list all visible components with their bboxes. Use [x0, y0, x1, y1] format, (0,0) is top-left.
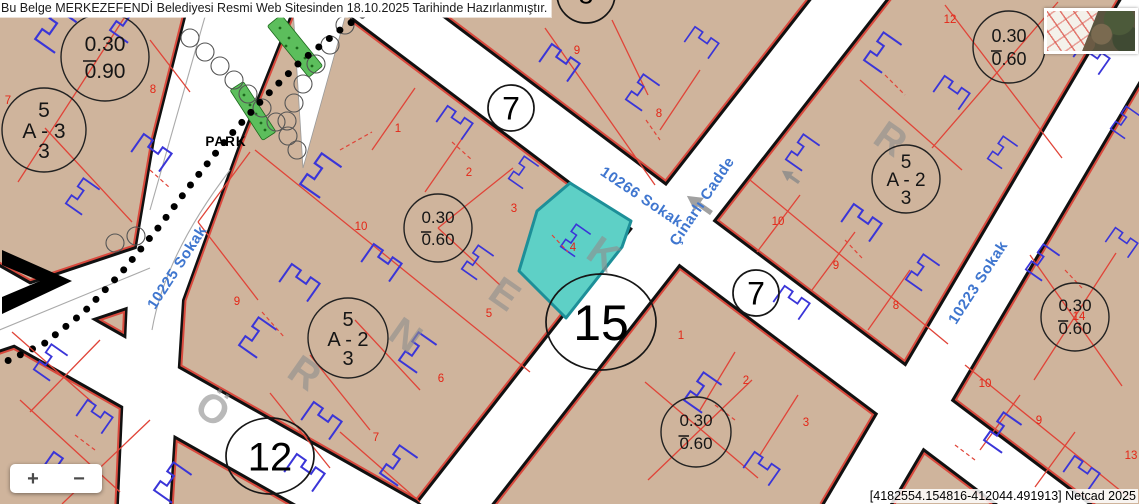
zoning-value: 0.90: [85, 60, 126, 83]
basemap-preview-toggle[interactable]: [1044, 8, 1138, 54]
zoning-value: 0.60: [991, 49, 1026, 69]
parcel-number: 3: [803, 417, 809, 429]
parcel-number: 12: [944, 14, 957, 26]
zoning-value: 5: [342, 309, 353, 331]
zoom-in-button[interactable]: +: [17, 469, 49, 489]
zoning-value: 0.30: [679, 411, 712, 430]
parcel-number: 9: [234, 296, 240, 308]
zoom-out-button[interactable]: −: [63, 469, 95, 489]
parcel-number: 13: [1125, 450, 1138, 462]
parcel-number: 7: [5, 95, 11, 107]
parcel-number: 1: [678, 330, 684, 342]
zoning-value: 3: [342, 348, 353, 370]
parcel-number: 9: [833, 260, 839, 272]
parcel-number: 8: [150, 84, 156, 96]
parcel-number: 10: [979, 378, 992, 390]
parcel-number: 8: [656, 108, 662, 120]
parcel-number: 4: [570, 242, 577, 254]
zoning-value: 0.60: [679, 434, 712, 453]
document-banner: Bu Belge MERKEZEFENDİ Belediyesi Resmi W…: [0, 0, 551, 17]
parcel-number: 10: [772, 216, 785, 228]
parcel-number: 9: [1036, 415, 1042, 427]
parcel-number: 9: [574, 45, 580, 57]
zoom-control: + −: [10, 464, 102, 493]
area-labels: PARK: [205, 134, 246, 149]
parcel-number: 10: [355, 221, 368, 233]
zoning-value: 3: [38, 140, 50, 163]
road-number: 7: [747, 276, 765, 312]
road-number: 3: [579, 0, 593, 9]
parcel-number: 2: [743, 375, 749, 387]
zoning-value: 5: [38, 99, 50, 122]
road-number: 12: [248, 435, 293, 479]
map-canvas[interactable]: ÖRNEKR 0.300.905A - 330.300.605A - 235A …: [0, 0, 1139, 504]
road-number: 15: [573, 295, 629, 351]
parcel-number: 2: [466, 167, 472, 179]
zoning-value: 0.30: [85, 33, 126, 56]
map-viewer: ÖRNEKR 0.300.905A - 330.300.605A - 235A …: [0, 0, 1139, 504]
parcel-number: 5: [486, 308, 492, 320]
parcel-number: 7: [373, 432, 379, 444]
parcel-number: 3: [511, 203, 517, 215]
park-label: PARK: [205, 134, 246, 149]
zoning-value: 0.30: [421, 208, 454, 227]
parcel-number: 8: [893, 300, 899, 312]
zoning-value: 0.30: [991, 26, 1026, 46]
zoning-value: 0.60: [421, 230, 454, 249]
parcel-number: 6: [438, 373, 444, 385]
parcel-number: 1: [395, 123, 401, 135]
road-number: 7: [502, 91, 520, 127]
parcel-number: 14: [1073, 311, 1086, 323]
coordinate-statusbar: [4182554.154816-412044.491913] Netcad 20…: [868, 489, 1138, 503]
zoning-value: 3: [901, 188, 912, 209]
